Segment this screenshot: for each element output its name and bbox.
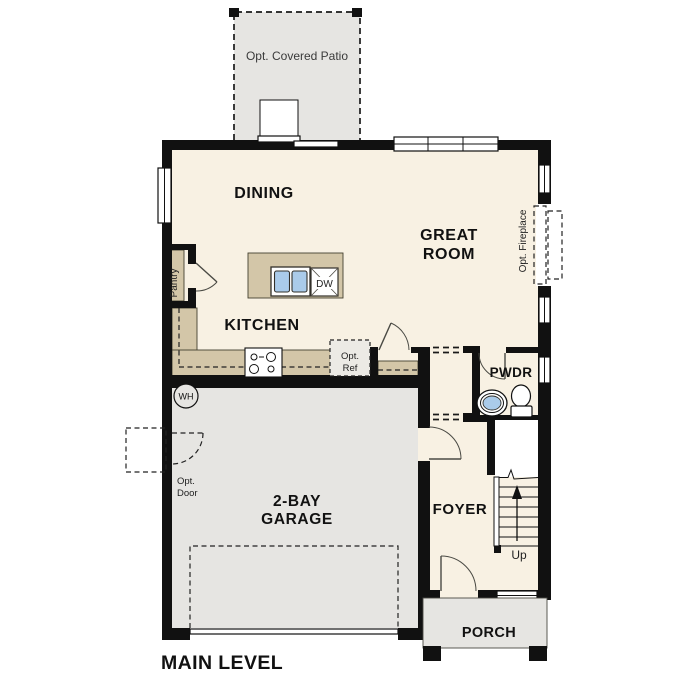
island-sink-icon <box>271 267 310 296</box>
fireplace-wall-clear <box>536 204 552 286</box>
water-heater-icon: WH <box>174 384 198 408</box>
garage-door-panel <box>190 629 398 634</box>
wall-pwdr-north <box>506 347 538 353</box>
range-body <box>245 348 282 377</box>
pwdr-sink-basin <box>483 396 501 410</box>
opening-garage-entry <box>418 428 430 461</box>
room-label-dining: DINING <box>234 185 294 202</box>
room-label-great-line2: ROOM <box>423 246 475 263</box>
dishwasher-label: DW <box>316 279 333 290</box>
water-heater-label: WH <box>179 392 194 402</box>
wall-pwdr-west <box>472 347 480 422</box>
room-label-pwdr: PWDR <box>490 365 533 380</box>
porch-post-left <box>423 646 441 661</box>
room-label-garage-line1: 2-BAY <box>273 493 321 510</box>
floor-plan-page: Opt. Covered Patio <box>0 0 687 687</box>
floor-fills <box>168 146 543 634</box>
opt-ref-label-line1: Opt. <box>341 351 359 362</box>
room-label-garage-line2: GARAGE <box>261 511 333 528</box>
dishwasher-icon: DW <box>311 268 338 296</box>
opening-closet <box>378 347 411 353</box>
floor-plan-drawing: Opt. Covered Patio <box>0 0 687 687</box>
opt-door-label-line2: Door <box>177 488 198 499</box>
wall-stair-west <box>487 418 495 475</box>
toilet-icon <box>511 385 532 417</box>
wall-closet-stub <box>411 347 418 353</box>
wall-pantry-stub-bottom <box>188 288 196 308</box>
wall-pantry-stub-top <box>188 244 196 264</box>
opt-door-label-line1: Opt. <box>177 476 195 487</box>
opt-door-stoop-dashed <box>126 428 166 472</box>
sliding-door-panel-right <box>294 141 338 147</box>
opening-pantry <box>188 264 196 288</box>
room-label-great-line1: GREAT <box>420 227 478 244</box>
toilet-bowl <box>512 385 531 407</box>
patio-post-left <box>229 8 239 17</box>
patio: Opt. Covered Patio <box>229 8 362 140</box>
stairs-up-label: Up <box>511 548 527 562</box>
wall-garage-top <box>162 375 430 388</box>
patio-landing <box>260 100 298 138</box>
stair-rail <box>494 477 499 546</box>
sink-basin-left <box>275 271 290 292</box>
porch: PORCH <box>423 598 547 661</box>
stair-upper-flight-area <box>495 420 538 477</box>
range-icon <box>245 348 282 377</box>
fireplace-label: Opt. Fireplace <box>518 209 529 272</box>
patio-post-right <box>352 8 362 17</box>
toilet-tank <box>511 406 532 417</box>
sink-basin-right <box>292 271 307 292</box>
pantry-label: Pantry <box>169 269 180 298</box>
plan-title: MAIN LEVEL <box>161 652 283 674</box>
patio-label: Opt. Covered Patio <box>246 49 348 63</box>
room-label-foyer: FOYER <box>433 501 488 518</box>
opt-ref-label-line2: Ref <box>343 363 358 374</box>
wall-closet-west <box>370 347 378 380</box>
room-label-porch: PORCH <box>462 625 516 641</box>
sink-icon <box>477 390 507 416</box>
optional-refrigerator: Opt. Ref <box>330 340 370 376</box>
porch-post-right <box>529 646 547 661</box>
room-label-kitchen: KITCHEN <box>224 317 299 334</box>
opening-pwdr <box>480 347 506 353</box>
